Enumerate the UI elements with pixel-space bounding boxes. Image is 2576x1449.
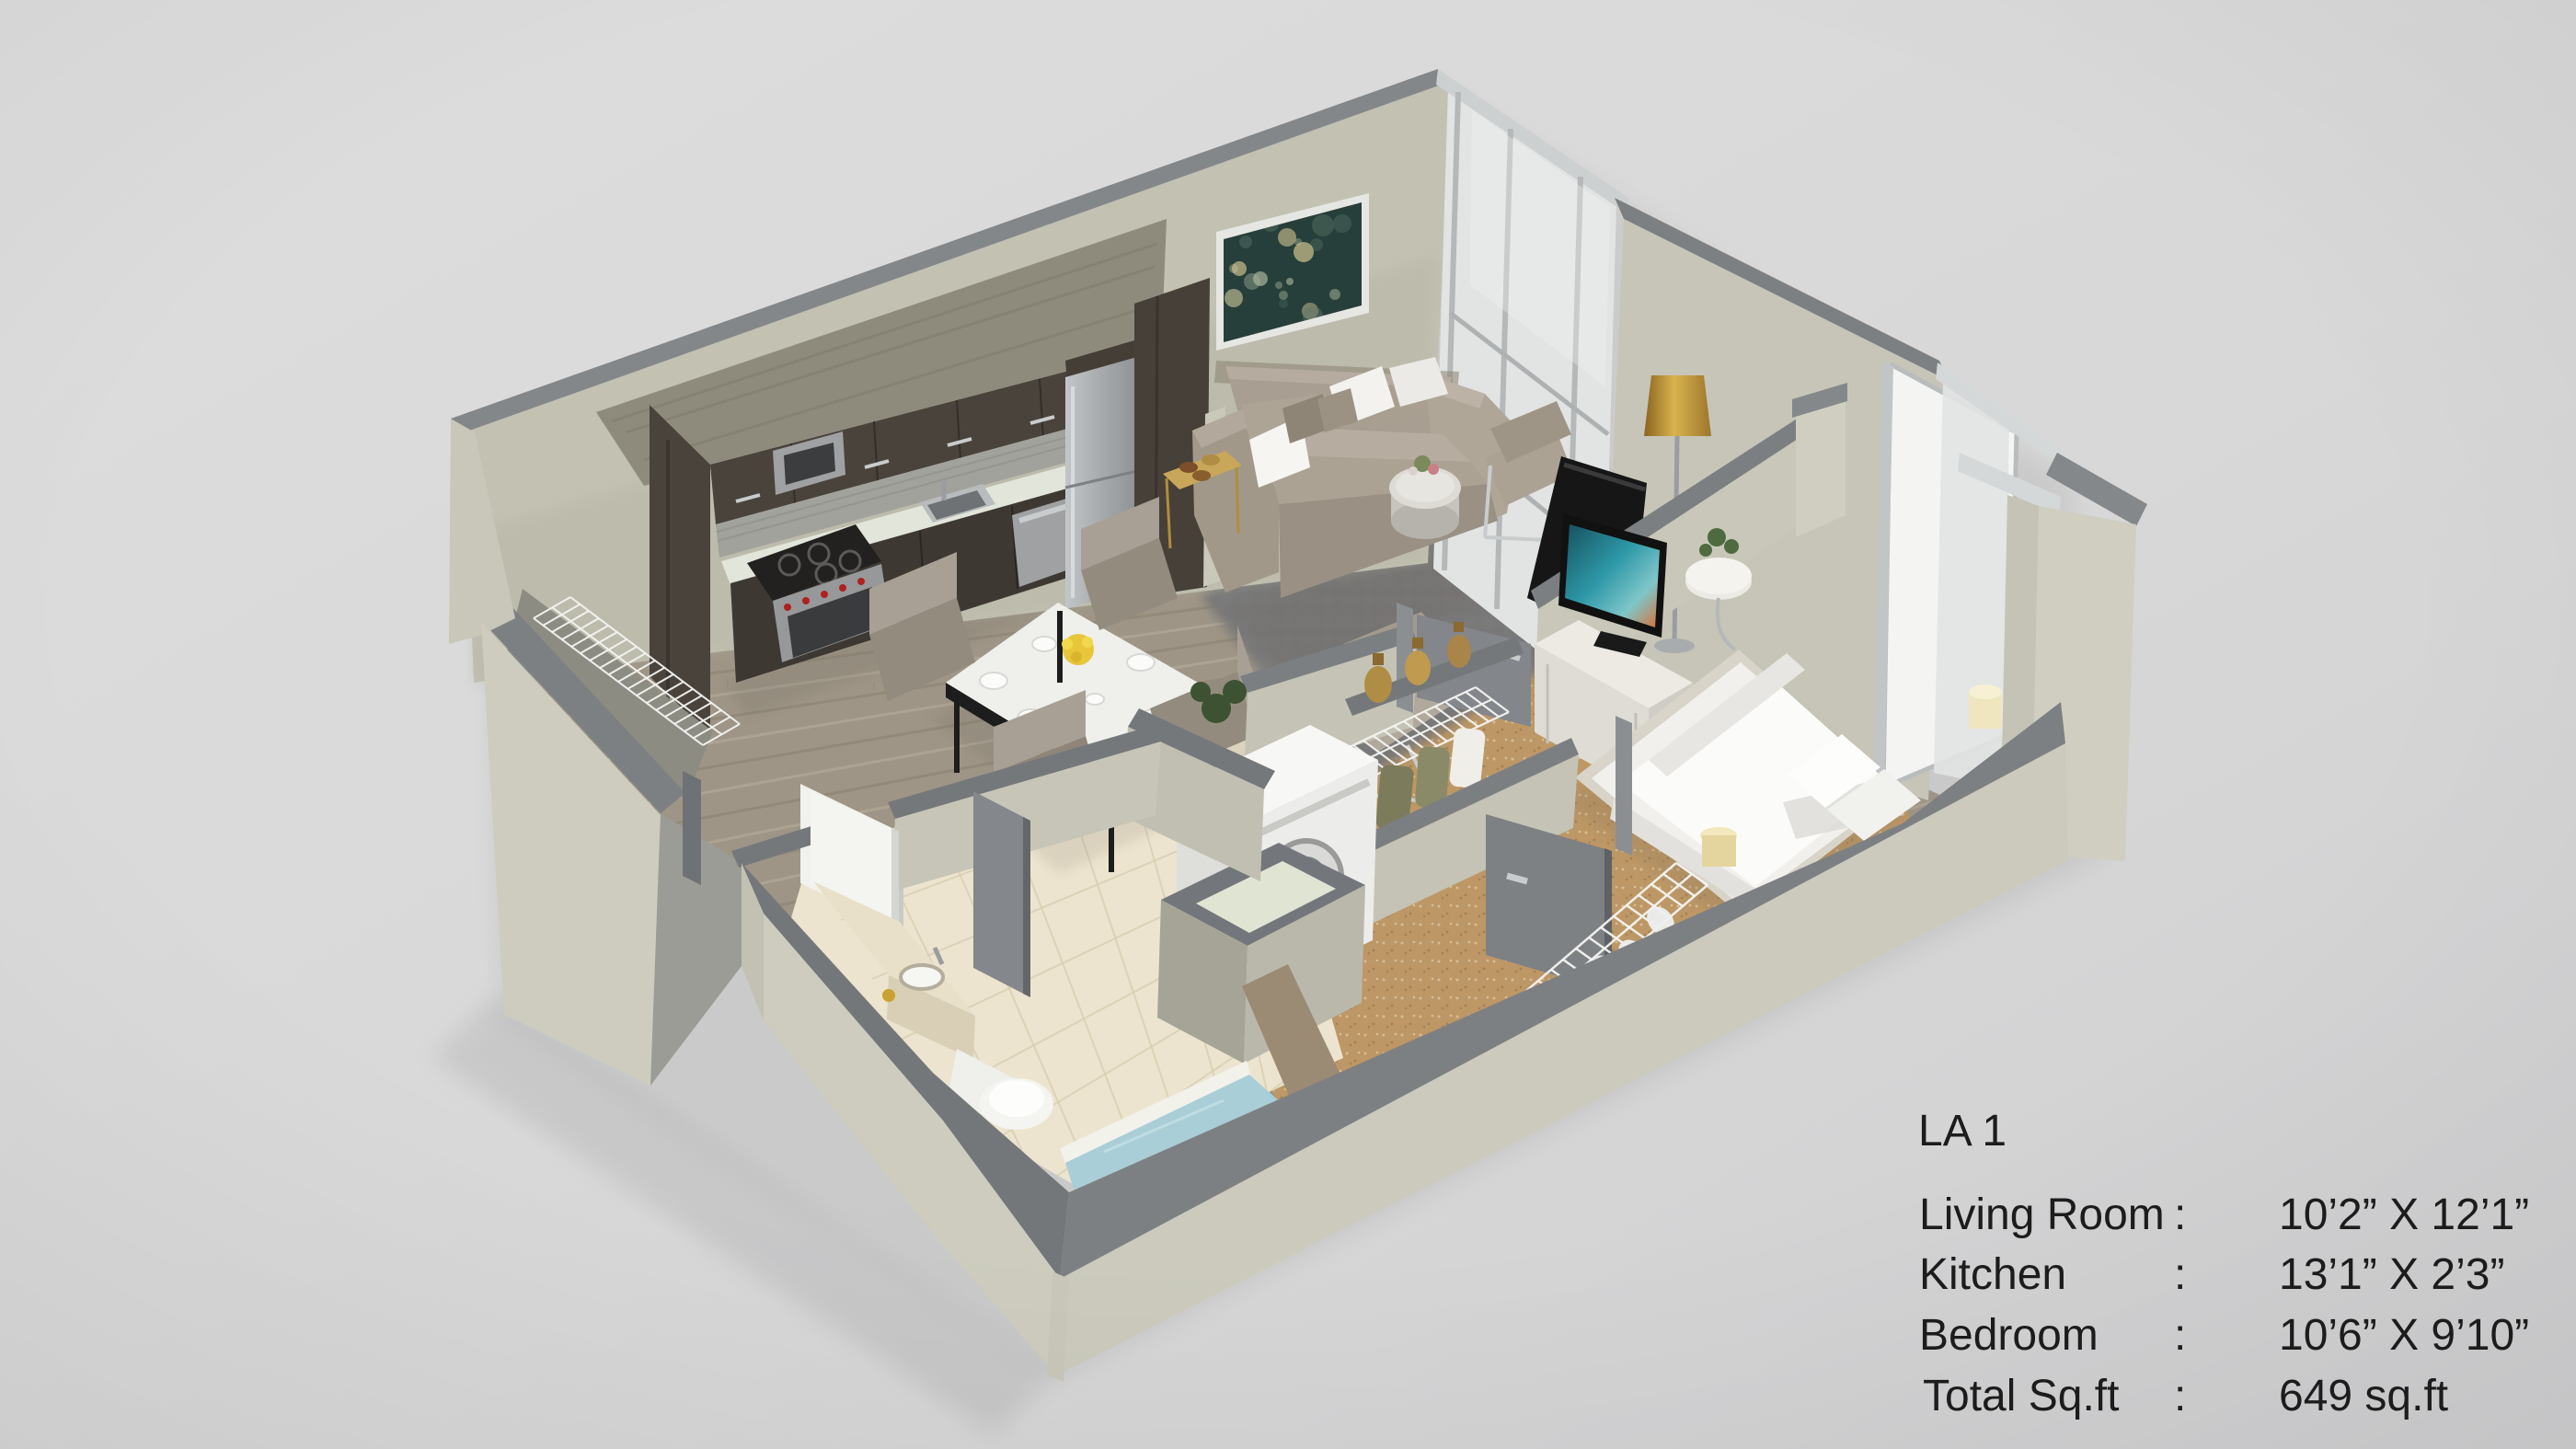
svg-text:10’6” X 9’10”: 10’6” X 9’10” [2279, 1311, 2529, 1360]
svg-text:Total Sq.ft: Total Sq.ft [1923, 1372, 2119, 1420]
svg-text:Kitchen: Kitchen [1919, 1250, 2066, 1299]
svg-text:10’2” X 12’1”: 10’2” X 12’1” [2279, 1190, 2529, 1239]
svg-text::: : [2174, 1190, 2186, 1239]
svg-text:13’1” X 2’3”: 13’1” X 2’3” [2279, 1250, 2504, 1299]
svg-text::: : [2174, 1311, 2186, 1360]
svg-text::: : [2174, 1372, 2186, 1420]
svg-text:Bedroom: Bedroom [1919, 1311, 2099, 1360]
svg-text:649 sq.ft: 649 sq.ft [2279, 1372, 2448, 1420]
svg-text::: : [2174, 1250, 2186, 1299]
svg-text:Living Room: Living Room [1919, 1190, 2165, 1239]
svg-text:LA 1: LA 1 [1918, 1107, 2007, 1156]
